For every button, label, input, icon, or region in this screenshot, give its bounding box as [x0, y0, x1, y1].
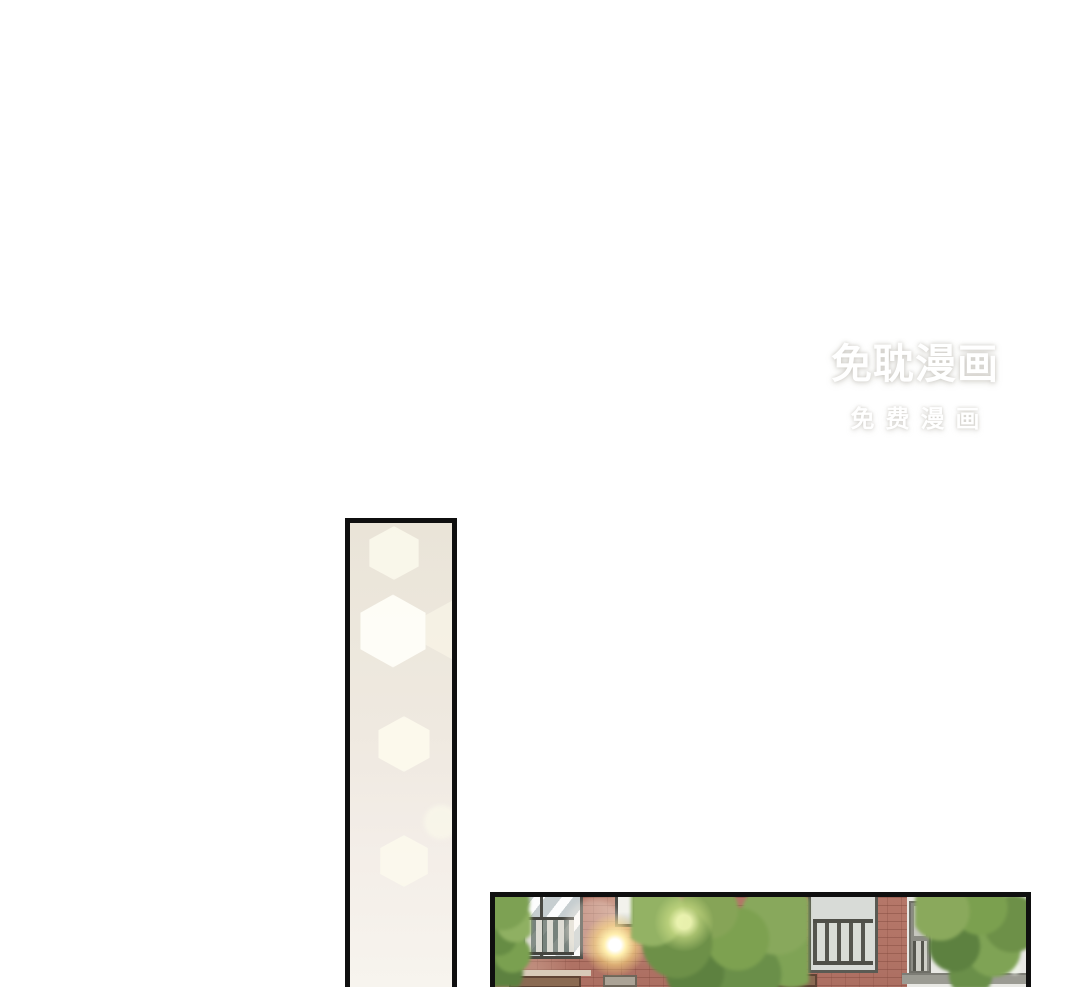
bokeh-hexagon — [422, 599, 457, 661]
bokeh-circle — [424, 805, 457, 839]
balcony-railing — [813, 919, 873, 965]
bokeh-hexagon — [366, 525, 422, 581]
comic-page: 免耽漫画 免费漫画 — [0, 0, 1080, 987]
panel-vertical-bokeh — [345, 518, 457, 987]
bokeh-hexagon — [377, 834, 431, 888]
tree-foliage-right — [915, 892, 1031, 987]
sunlight-glow — [653, 892, 715, 953]
panel-building — [490, 892, 1031, 987]
watermark-line2: 免费漫画 — [795, 399, 1035, 434]
bokeh-hexagon — [375, 715, 433, 773]
bokeh-hexagon — [356, 593, 430, 669]
tree-foliage-left — [490, 892, 531, 987]
watermark-line1: 免耽漫画 — [795, 330, 1035, 390]
balcony-window-right — [808, 897, 878, 973]
watermark: 免耽漫画 免费漫画 — [795, 330, 1035, 434]
